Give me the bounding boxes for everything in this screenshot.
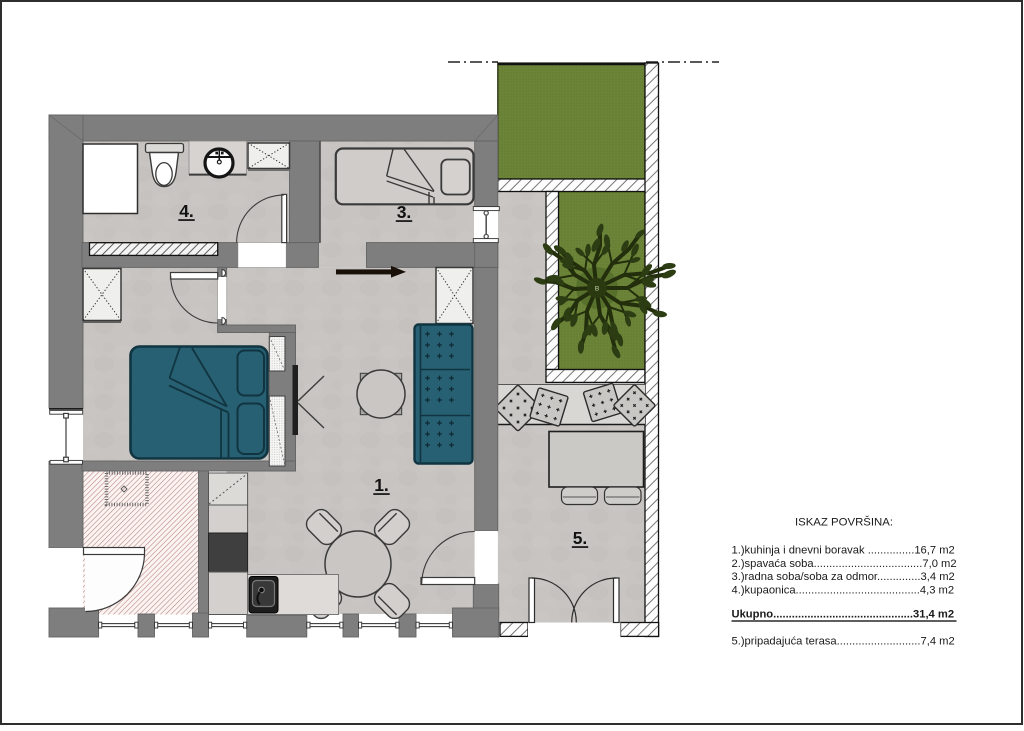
svg-text:ISKAZ POVRŠINA:: ISKAZ POVRŠINA: xyxy=(795,516,893,529)
svg-text:1.)kuhinja i dnevni boravak ..: 1.)kuhinja i dnevni boravak ............… xyxy=(732,545,955,557)
svg-text:1.: 1. xyxy=(374,475,389,495)
svg-text:4.: 4. xyxy=(179,201,194,221)
svg-text:2.)spavaća soba...............: 2.)spavaća soba.........................… xyxy=(732,558,957,570)
svg-text:B: B xyxy=(595,286,599,293)
svg-text:3.)radna soba/soba za odmor...: 3.)radna soba/soba za odmor.............… xyxy=(732,571,955,583)
svg-text:3.: 3. xyxy=(397,202,412,222)
svg-text:5.)pripadajuća terasa.........: 5.)pripadajuća terasa...................… xyxy=(732,635,955,647)
svg-text:4.)kupaonica..................: 4.)kupaonica............................… xyxy=(732,584,955,596)
svg-text:5.: 5. xyxy=(573,528,588,548)
svg-text:Ukupno........................: Ukupno..................................… xyxy=(732,609,955,621)
